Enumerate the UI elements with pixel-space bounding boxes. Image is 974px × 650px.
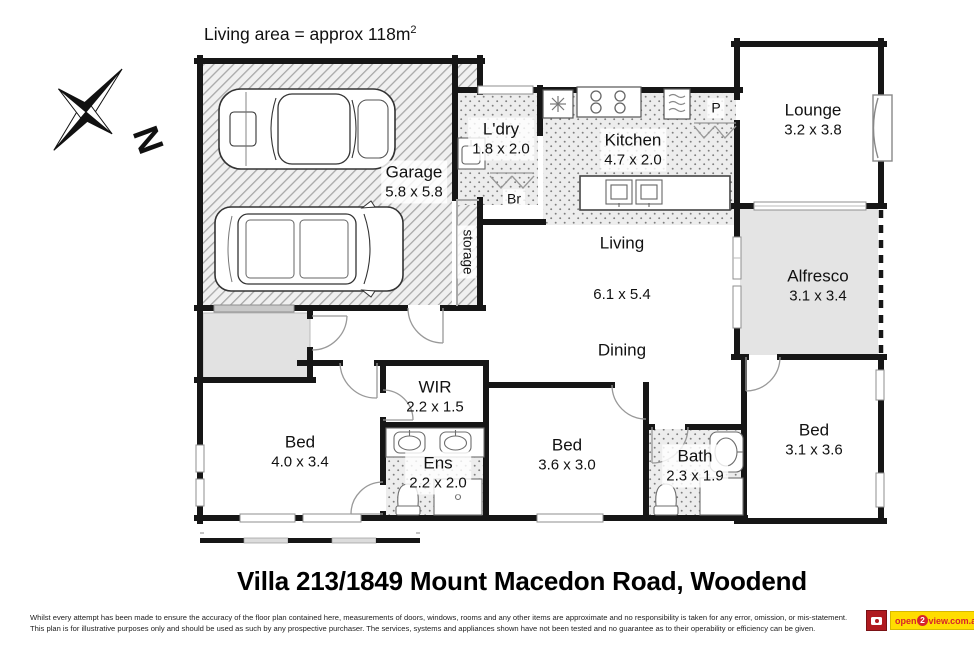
room-label-bath: Bath 2.3 x 1.9 [662, 445, 728, 488]
disclaimer-line-1: Whilst every attempt has been made to en… [30, 612, 860, 623]
open2view-logo: open2view.com.au [866, 610, 974, 631]
room-label-storage: storage [458, 225, 477, 278]
room-label-broom: Br [503, 189, 525, 209]
room-label-bed-two: Bed 3.6 x 3.0 [538, 435, 596, 476]
living-area-note: Living area = approx 118m2 [204, 24, 417, 45]
scale-bar [200, 533, 420, 543]
room-label-bed-three: Bed 3.1 x 3.6 [785, 420, 843, 461]
floor-plan-drawing: N [0, 0, 974, 650]
room-label-wir: WIR 2.2 x 1.5 [406, 377, 464, 418]
disclaimer: Whilst every attempt has been made to en… [30, 612, 860, 634]
page-title: Villa 213/1849 Mount Macedon Road, Woode… [70, 566, 974, 597]
car-classic [219, 89, 395, 169]
room-dims-living: 6.1 x 5.4 [593, 285, 651, 305]
disclaimer-line-2: This plan is for illustrative purposes o… [30, 623, 860, 634]
room-label-living: Living [600, 232, 644, 253]
compass-rose-icon: N [26, 46, 172, 172]
car-suv [215, 201, 403, 297]
room-label-kitchen: Kitchen 4.7 x 2.0 [600, 129, 666, 172]
fan-icon [550, 96, 566, 112]
kitchen-island [580, 176, 730, 210]
bay-window [873, 95, 892, 161]
room-label-alfresco: Alfresco 3.1 x 3.4 [787, 266, 848, 307]
toilet [654, 484, 678, 515]
room-label-bed-main: Bed 4.0 x 3.4 [271, 432, 329, 473]
cooktop-icon [577, 87, 641, 117]
room-label-dining: Dining [598, 339, 646, 360]
logo-text: open2view.com.au [890, 611, 974, 630]
floor-plan-page: N Living area = approx 118m2 Garage 5.8 … [0, 0, 974, 650]
room-label-pantry: P [707, 98, 724, 118]
compass-north-label: N [125, 121, 172, 159]
room-label-garage: Garage 5.8 x 5.8 [381, 161, 447, 204]
room-label-ensuite: Ens 2.2 x 2.0 [405, 452, 471, 495]
room-label-laundry: L'dry 1.8 x 2.0 [468, 118, 534, 161]
camera-icon [866, 610, 887, 631]
room-label-lounge: Lounge 3.2 x 3.8 [784, 100, 842, 141]
oven-icon [664, 89, 690, 119]
kitchen-appliances [543, 87, 690, 119]
